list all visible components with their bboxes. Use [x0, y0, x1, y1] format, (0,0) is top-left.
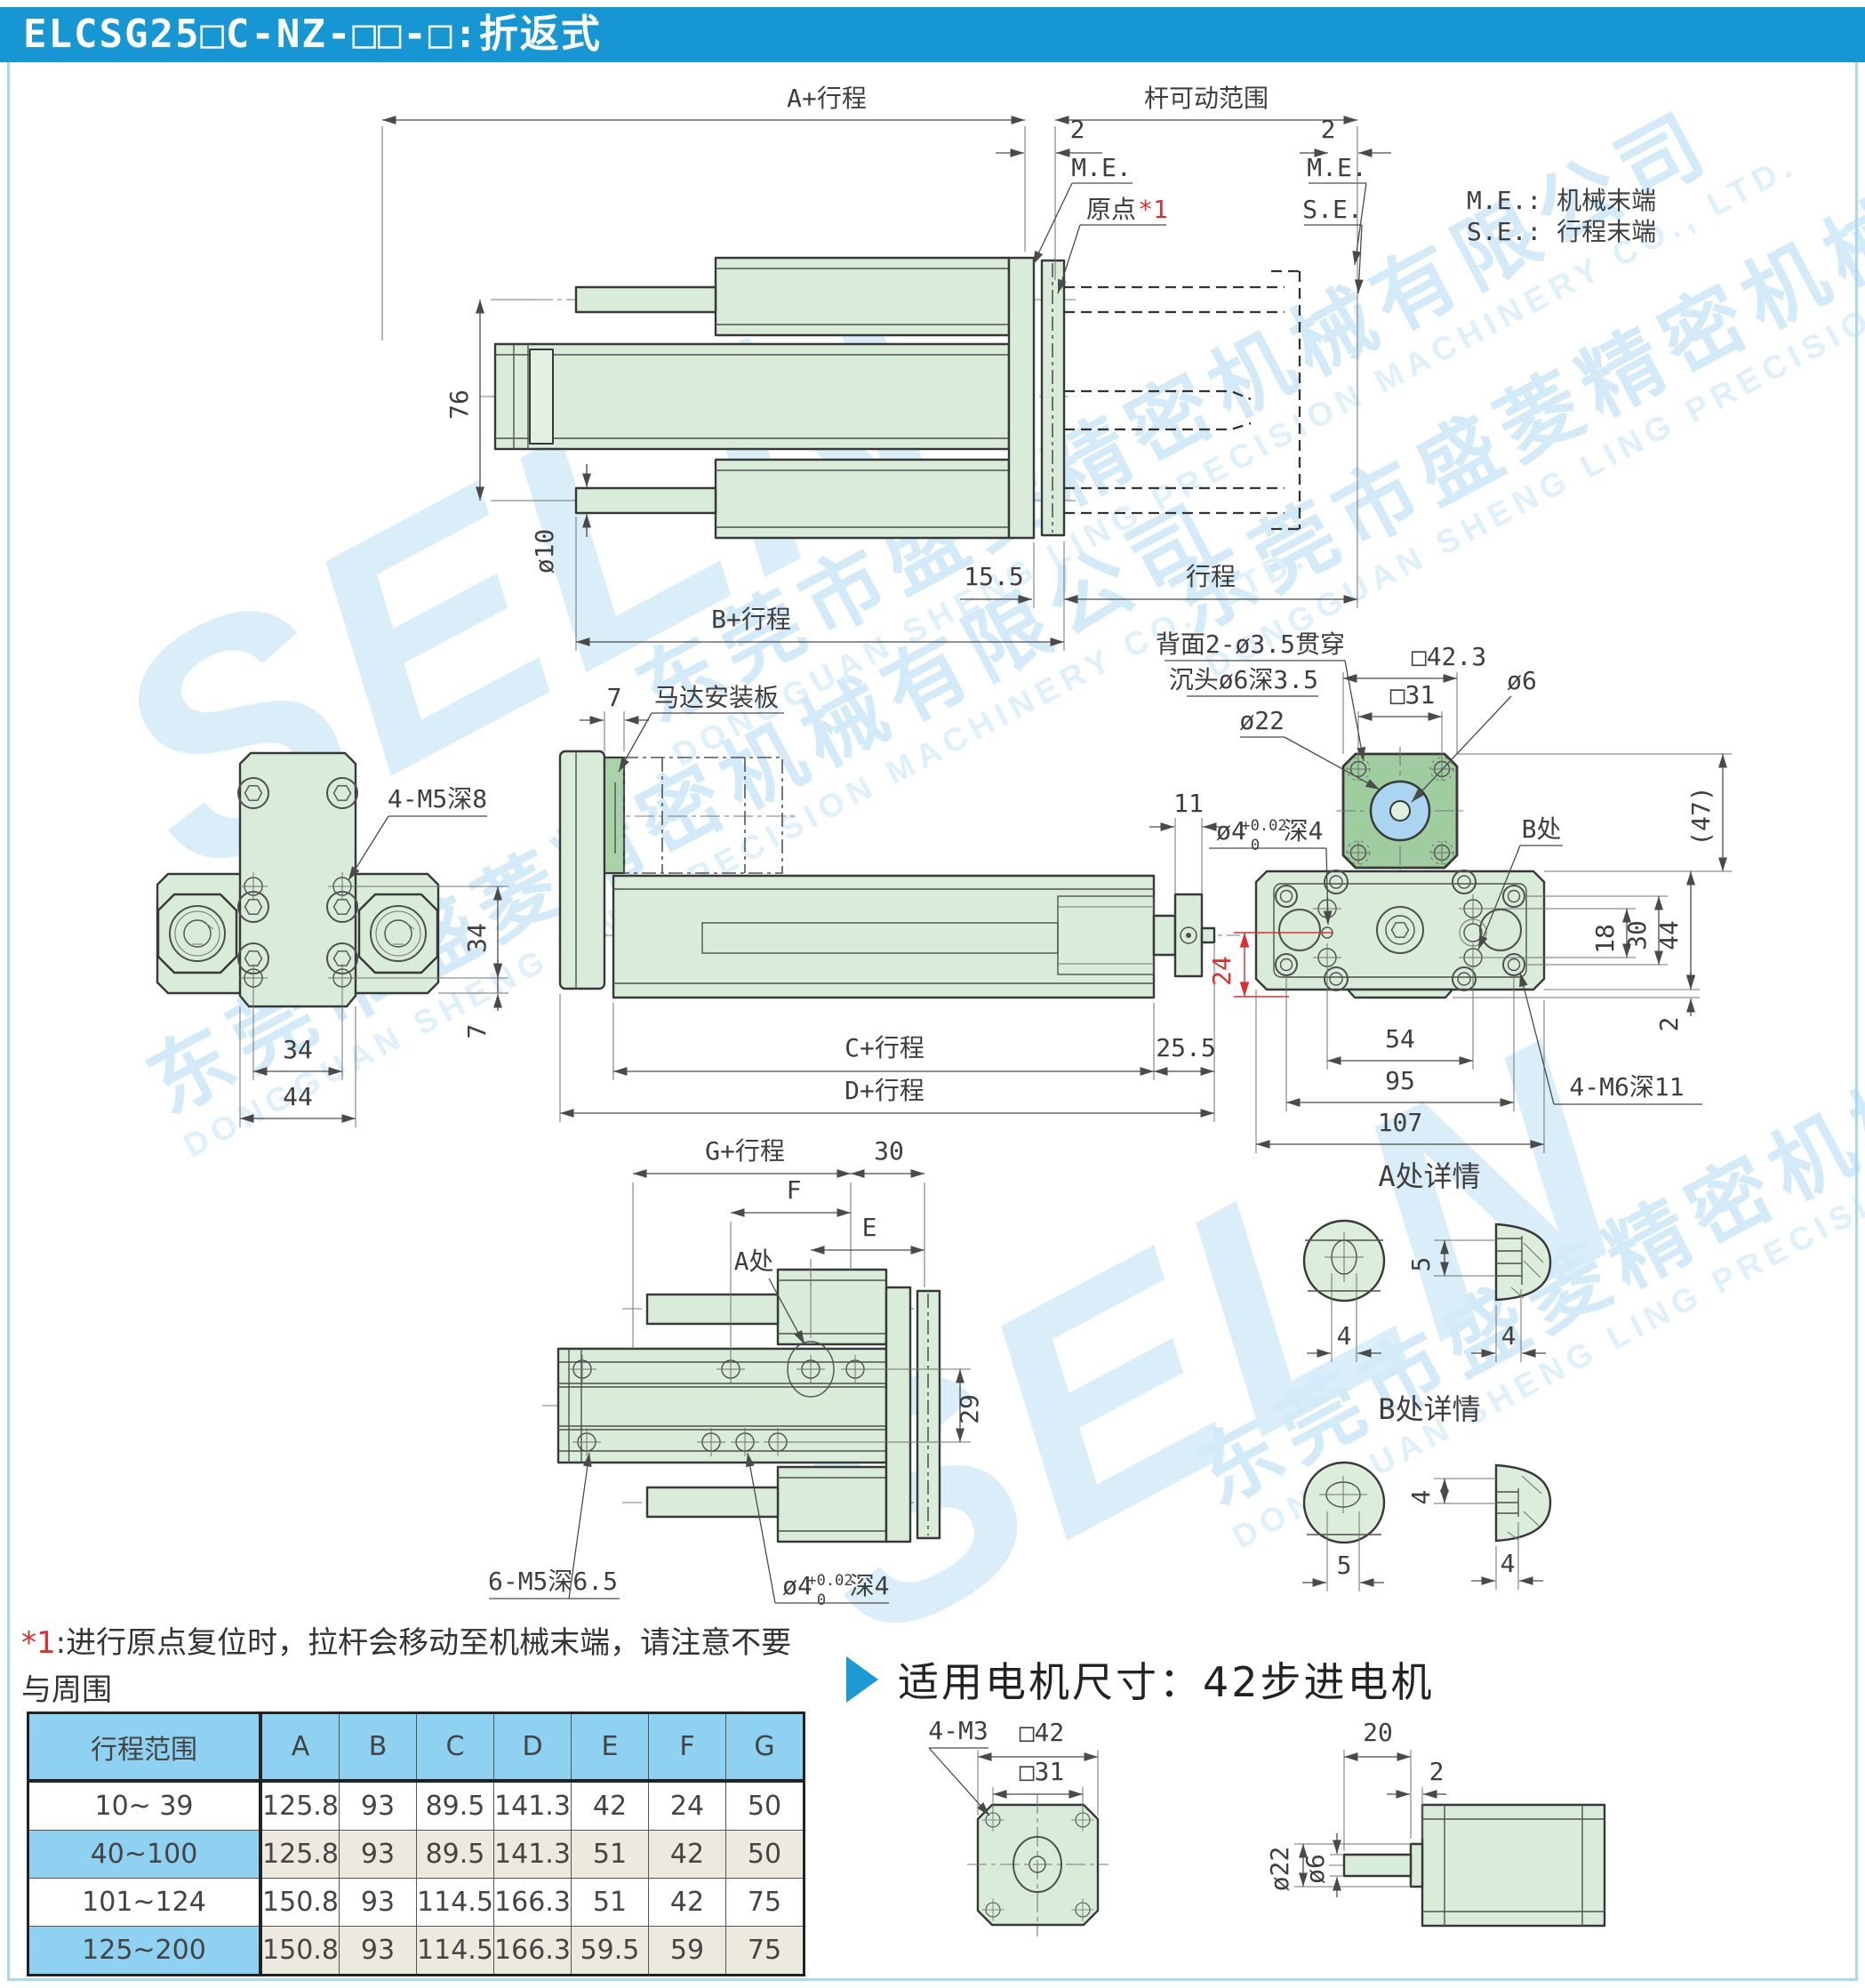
dim-b-stroke: B+行程: [711, 605, 791, 634]
front-view: 4-M5深8 34 7 34 44: [157, 753, 508, 1127]
motor-body: [1422, 1805, 1605, 1926]
note-counterbore: 沉头ø6深3.5: [1169, 665, 1318, 694]
dim-rod-range: 杆可动范围: [1144, 84, 1269, 113]
dim-sq42-3: □42.3: [1412, 642, 1486, 671]
legend-se: S.E.: 行程末端: [1467, 217, 1656, 246]
dim-2-right: 2: [1321, 115, 1336, 144]
dim-2: 2: [1654, 1017, 1684, 1032]
dim-sq31: □31: [1390, 680, 1436, 709]
dim-d4-tol-sub-plan: 0: [817, 1591, 826, 1609]
dim-f: F: [787, 1175, 802, 1205]
dim-a-stroke: A+行程: [787, 84, 867, 113]
dim-7: 7: [462, 1024, 492, 1039]
actuator-body-rear: [1256, 871, 1544, 990]
detail-a-title: A处详情: [1378, 1159, 1480, 1193]
detail-b-dim-4b: 4: [1501, 1549, 1516, 1578]
dim-95: 95: [1385, 1066, 1415, 1095]
dim-d-stroke: D+行程: [844, 1076, 924, 1105]
detail-a-dim-5: 5: [1406, 1257, 1436, 1272]
dim-d4-tol-sub: 0: [1251, 837, 1260, 854]
dim-d4-tol-sup-plan: +0.02: [807, 1572, 852, 1590]
dim-20: 20: [1363, 1718, 1393, 1747]
dim-11: 11: [1173, 789, 1204, 818]
rod-block-bottom: [716, 460, 1009, 538]
dim-15-5: 15.5: [964, 562, 1023, 591]
dim-54: 54: [1385, 1024, 1415, 1054]
dim-c-stroke: C+行程: [844, 1033, 924, 1062]
dim-7-plate: 7: [607, 683, 622, 712]
plan-view: G+行程 30 F E A处 29 6-M5深6.5 ø4 +0.02 0 深4: [488, 1136, 984, 1609]
label-a-spot: A处: [734, 1247, 774, 1276]
motor-section-title: 适用电机尺寸：42步进电机: [846, 1650, 1435, 1709]
detail-b-dim-5: 5: [1337, 1551, 1352, 1580]
dim-d4-depth-plan: 深4: [850, 1571, 890, 1600]
dim-34-vertical: 34: [462, 923, 492, 953]
rod-bushing-left: [158, 894, 236, 973]
motor-side-view: 20 2 ø22 ø6: [1265, 1718, 1605, 1926]
end-plate-plan: [886, 1287, 910, 1542]
thread-4m5: 4-M5深8: [388, 784, 487, 814]
actuator-body-side: [613, 876, 1154, 998]
thread-4m3: 4-M3: [928, 1716, 988, 1745]
dim-d22: ø22: [1265, 1847, 1294, 1892]
rod-block-top: [716, 258, 1009, 335]
dim-30: 30: [1622, 920, 1652, 950]
label-se: S.E.: [1302, 195, 1362, 224]
stroke-table: 行程范围 A B C D E F G 10~ 39 125.8 93 89.5 …: [27, 1711, 805, 1976]
table-row: 101~124 150.8 93 114.5 166.3 51 42 75: [28, 1879, 804, 1927]
actuator-body: [495, 344, 1009, 449]
dim-30: 30: [874, 1136, 904, 1166]
note-back-holes: 背面2-ø3.5贯穿: [1156, 629, 1345, 659]
motor-shaft: [1344, 1855, 1411, 1876]
label-me-left: M.E.: [1071, 153, 1131, 182]
legend-me: M.E.: 机械末端: [1467, 186, 1656, 215]
dim-18: 18: [1590, 924, 1620, 954]
rod-bushing-right: [359, 894, 437, 973]
label-me-right: M.E.: [1307, 153, 1366, 182]
dim-2: 2: [1429, 1757, 1445, 1786]
dim-sq31: □31: [1020, 1757, 1065, 1786]
dim-g-stroke: G+行程: [705, 1136, 785, 1166]
rod-bottom: [576, 488, 716, 513]
end-plate: [1009, 258, 1034, 538]
table-row: 40~100 125.8 93 89.5 141.3 51 42 50: [28, 1831, 804, 1879]
side-view: 7 马达安装板 11 C+行程 25.5 D+行程: [560, 683, 1240, 1122]
dim-29: 29: [955, 1394, 984, 1424]
dim-sq42: □42: [1020, 1718, 1065, 1747]
extended-position-dashed: [1064, 271, 1300, 529]
detail-b: B处详情 5 4 4: [1302, 1392, 1550, 1591]
col-header-range: 行程范围: [28, 1713, 261, 1782]
table-row: 125~200 150.8 93 114.5 166.3 59.5 59 75: [28, 1927, 804, 1976]
table-row: 10~ 39 125.8 93 89.5 141.3 42 24 50: [28, 1781, 804, 1831]
dim-d6: ø6: [1301, 1854, 1330, 1884]
detail-b-dim-4a: 4: [1406, 1490, 1436, 1505]
motor-face-view: 4-M3 □42 □31: [928, 1716, 1109, 1936]
dim-24-red: 24: [1207, 956, 1237, 986]
detail-a-dim-4a: 4: [1337, 1321, 1352, 1351]
end-cap: [560, 751, 604, 989]
table-header-row: 行程范围 A B C D E F G: [28, 1713, 804, 1782]
label-origin-ref: *1: [1138, 195, 1168, 224]
dim-76: 76: [444, 389, 474, 420]
dim-2-left: 2: [1070, 115, 1085, 144]
motor-mount-plate: [604, 758, 624, 873]
dim-d4-depth: 深4: [1284, 816, 1324, 846]
mount-plate-vertical: [240, 753, 356, 1006]
play-triangle-icon: [846, 1656, 878, 1703]
top-view: A+行程 杆可动范围 2 2 M.E. 原点 *1 M.E. S.E. M.E.…: [382, 84, 1656, 651]
dim-44: 44: [1654, 920, 1684, 950]
detail-a: A处详情 4 5 4: [1304, 1159, 1550, 1362]
dim-d22: ø22: [1239, 706, 1285, 735]
rod-top: [576, 287, 716, 312]
label-origin: 原点: [1086, 195, 1136, 224]
footnote-ref: *1: [21, 1625, 56, 1661]
dim-107: 107: [1378, 1108, 1423, 1137]
dim-diameter-10: ø10: [530, 529, 559, 574]
detail-a-dim-4b: 4: [1501, 1321, 1517, 1351]
thread-6m5: 6-M5深6.5: [488, 1567, 618, 1596]
dim-d6: ø6: [1507, 666, 1537, 695]
footnote-line1: :进行原点复位时，拉杆会移动至机械末端，请注意不要与周围: [21, 1625, 791, 1708]
dim-e: E: [862, 1213, 877, 1242]
dim-stroke: 行程: [1186, 562, 1236, 591]
dim-47: (47): [1686, 786, 1716, 846]
dim-44: 44: [283, 1082, 313, 1111]
dim-25-5: 25.5: [1156, 1033, 1215, 1062]
rear-view: □42.3 □31 ø6 背面2-ø3.5贯穿 沉头ø6深3.5 ø22 ø4 …: [1156, 629, 1732, 1153]
thread-4m6: 4-M6深11: [1569, 1072, 1684, 1102]
motor-outline-dashed: [624, 758, 782, 873]
rod-top-plan: [647, 1295, 778, 1324]
motor-title-text: 适用电机尺寸：42步进电机: [898, 1650, 1435, 1709]
dim-34-bottom: 34: [283, 1035, 313, 1064]
label-b-spot: B处: [1522, 814, 1562, 844]
motor-boss: [1411, 1844, 1422, 1887]
label-motor-plate: 马达安装板: [654, 683, 779, 712]
detail-b-title: B处详情: [1378, 1392, 1480, 1426]
dim-d4-tol-sup: +0.02: [1241, 817, 1286, 835]
shaft-hole: [1390, 801, 1410, 821]
